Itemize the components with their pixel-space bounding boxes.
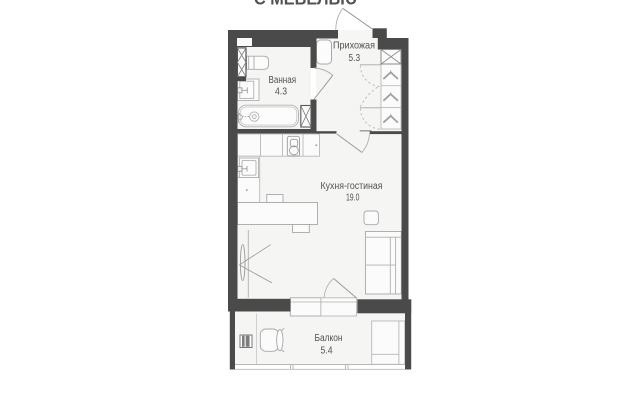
svg-text:Балкон: Балкон xyxy=(315,333,343,344)
svg-text:5.4: 5.4 xyxy=(321,345,333,356)
svg-text:5.3: 5.3 xyxy=(349,53,361,64)
svg-text:Прихожая: Прихожая xyxy=(333,41,375,52)
svg-text:С МЕБЕЛЬЮ: С МЕБЕЛЬЮ xyxy=(254,0,357,9)
svg-text:Ванная: Ванная xyxy=(269,75,297,86)
svg-text:4.3: 4.3 xyxy=(275,86,287,97)
svg-text:19.0: 19.0 xyxy=(346,192,360,203)
svg-text:Кухня-гостиная: Кухня-гостиная xyxy=(321,181,383,192)
